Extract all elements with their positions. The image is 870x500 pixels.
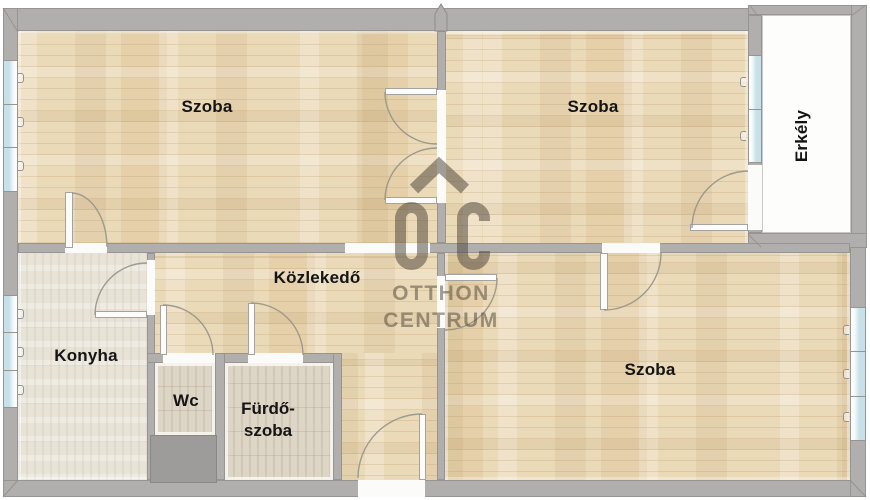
doorway-kitchen [147, 260, 155, 315]
doorway-bathroom [248, 353, 303, 363]
doorway-double-door-top-rooms [437, 90, 446, 203]
window-handle-icon [18, 385, 24, 395]
room-label-szoba-top-left: Szoba [181, 97, 232, 117]
window-room-top-left [3, 60, 18, 192]
window-balcony-wall [748, 55, 762, 163]
watermark-brand-line1: OTTHON [392, 282, 490, 306]
wall-balcony-right [851, 5, 867, 248]
door-leaf-kitchen [95, 311, 147, 318]
room-label-erkely: Erkély [792, 110, 812, 162]
window-handle-icon [843, 325, 849, 335]
kitchen-floor [18, 253, 147, 480]
door-leaf-double-a [385, 88, 437, 95]
wall-bathroom-right [333, 353, 342, 480]
passage-room-to-hallway [345, 243, 430, 253]
window-handle-icon [740, 131, 746, 141]
room-label-kozlekedo: Közlekedő [274, 268, 361, 288]
room-label-furdoszoba: Fürdő- szoba [241, 398, 295, 442]
window-handle-icon [843, 412, 849, 422]
window-handle-icon [740, 77, 746, 87]
room-label-furdoszoba-line1: Fürdő- [241, 398, 295, 420]
door-leaf [65, 192, 73, 248]
doorway-top-room-to-bottom-room [602, 243, 660, 253]
room-label-furdoszoba-line2: szoba [241, 420, 295, 442]
room-top-left-floor [18, 31, 437, 243]
watermark-brand-line2: CENTRUM [383, 309, 499, 333]
door-leaf-double-b [385, 197, 437, 204]
window-room-bottom [850, 307, 866, 441]
wall-exterior-bottom [3, 480, 866, 497]
window-handle-icon [843, 369, 849, 379]
room-label-konyha: Konyha [54, 346, 118, 366]
door-leaf [600, 253, 608, 310]
doorway-wc [163, 353, 215, 363]
window-handle-icon [18, 347, 24, 357]
door-leaf [445, 274, 497, 281]
door-leaf-wc [160, 305, 167, 355]
room-label-wc: Wc [173, 391, 199, 411]
window-handle-icon [18, 117, 24, 127]
floor-plan: OTTHON CENTRUM Szoba Szoba Szoba Konyha … [0, 0, 870, 500]
window-handle-icon [18, 73, 24, 83]
utility-shaft [150, 435, 217, 483]
wall-exterior-top [3, 8, 757, 31]
door-leaf-balcony [690, 224, 748, 231]
window-handle-icon [18, 309, 24, 319]
wall-center-horizontal [18, 243, 850, 253]
window-handle-icon [18, 161, 24, 171]
window-kitchen [3, 295, 18, 408]
door-leaf-bathroom [248, 303, 255, 355]
room-label-szoba-bottom: Szoba [624, 360, 675, 380]
door-leaf-entrance [419, 414, 426, 480]
wall-balcony-top [748, 5, 867, 15]
doorway-balcony [748, 165, 762, 230]
doorway-entrance [358, 480, 425, 497]
room-label-szoba-top-right: Szoba [567, 97, 618, 117]
room-top-right-floor [446, 31, 748, 243]
